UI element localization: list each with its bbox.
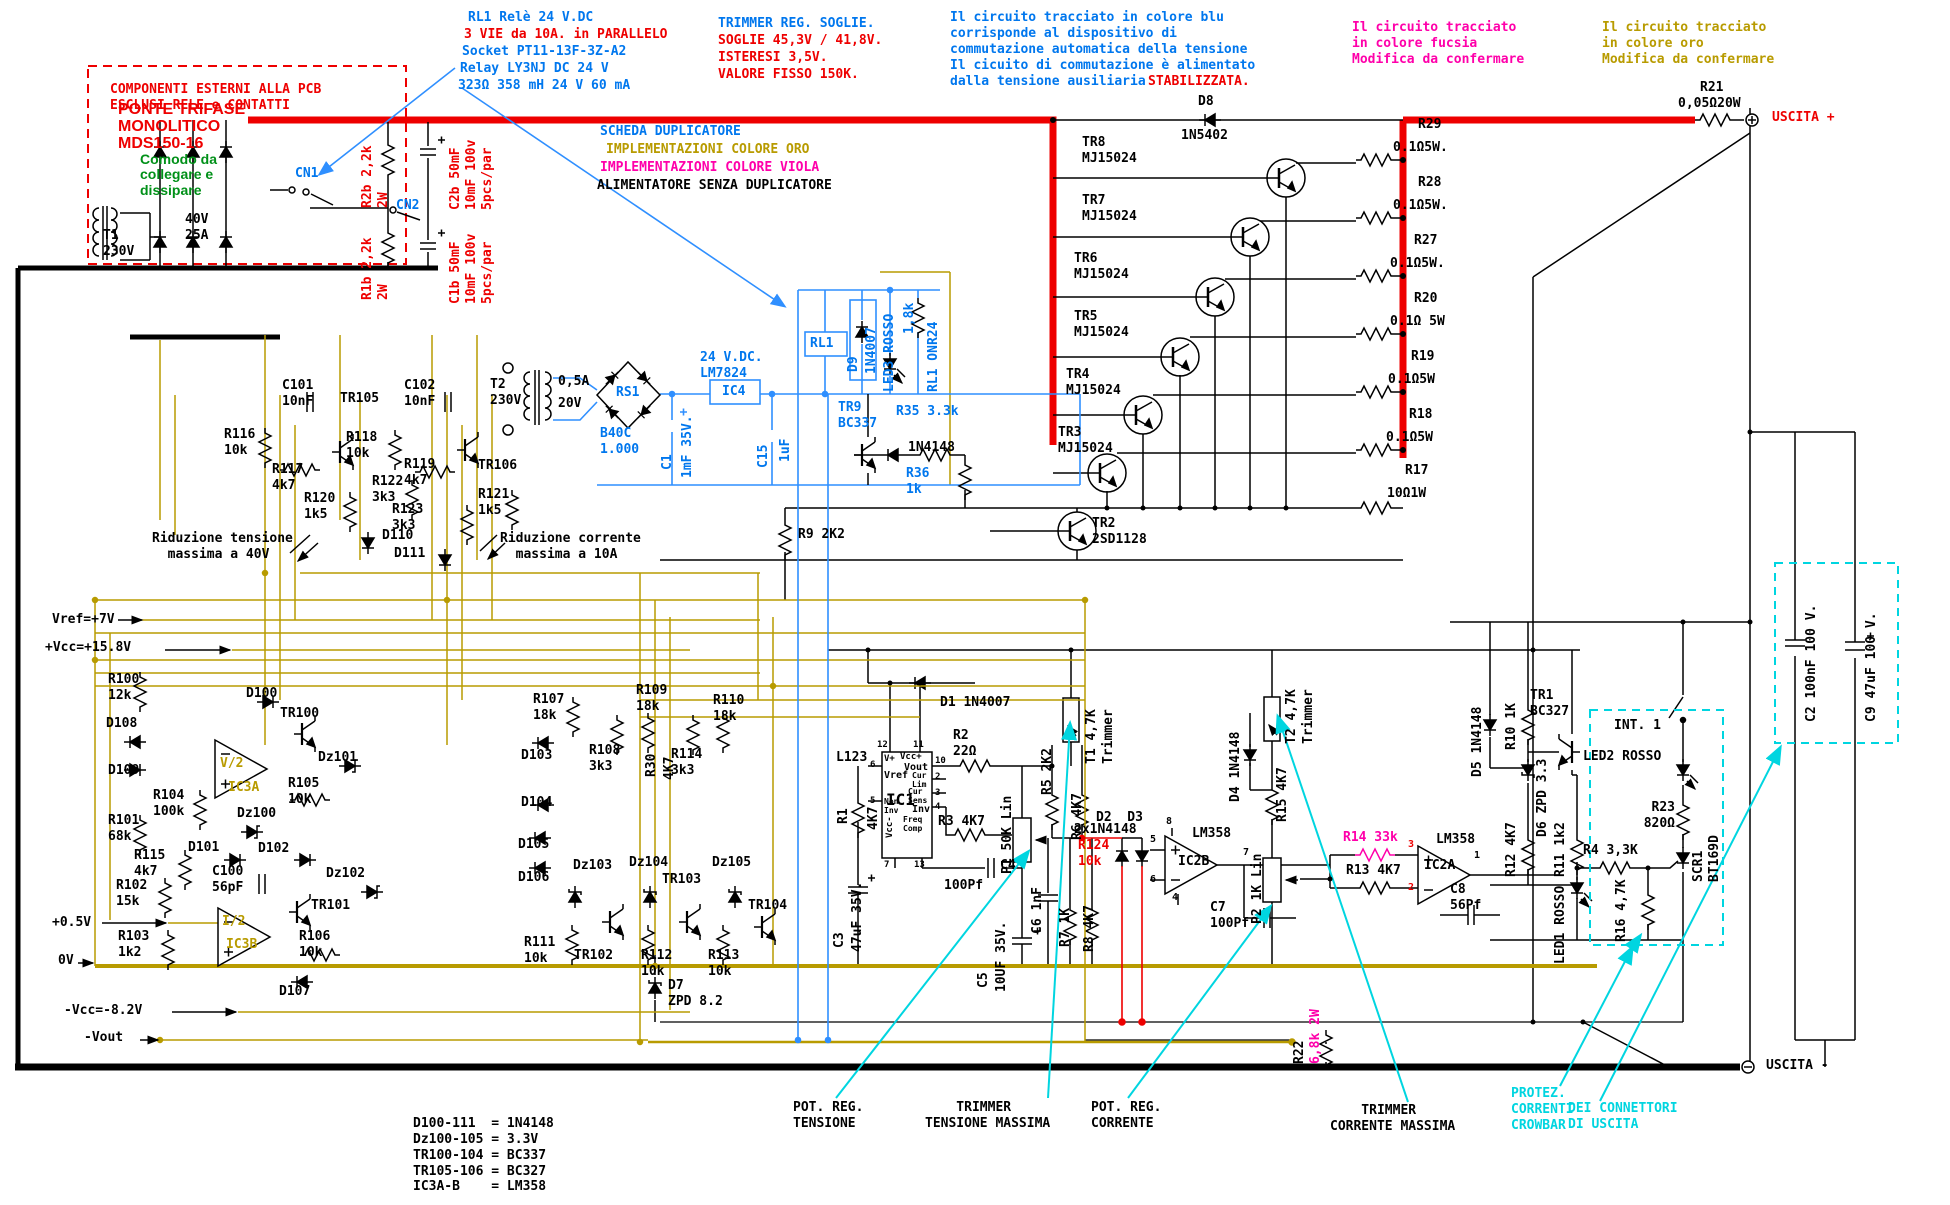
d4-label: D4 1N4148 (1228, 732, 1244, 802)
d9-value: 1N4007 (864, 327, 880, 374)
c7-label: C7 100Pf (1210, 900, 1249, 932)
vref-label: Vref=+7V (52, 612, 115, 628)
r16-label: R16 4,7K (1614, 879, 1630, 942)
d102-label: D102 (258, 841, 289, 857)
d110-label: D110 (382, 528, 413, 544)
note-blue-circuit: Il circuito tracciato in colore blu corr… (950, 10, 1255, 73)
p2-label: P2 1K Lin (1250, 854, 1266, 924)
aux-supply (320, 68, 1080, 1043)
note-scheda-2: IMPLEMENTAZIONI COLORE ORO (606, 142, 810, 158)
r20-label: R20 (1414, 291, 1437, 307)
c5-label: C5 (976, 972, 992, 988)
r22-value: 6,8k 2W (1308, 1009, 1324, 1064)
d105-label: D105 (518, 837, 549, 853)
r112-label: R112 10k (641, 948, 672, 980)
ic1-pin11: 11 (913, 740, 924, 751)
r103-label: R103 1k2 (118, 929, 149, 961)
ic2a-pin2: 2 (1408, 882, 1414, 894)
r120-label: R120 1k5 (304, 491, 335, 523)
ic1-pin4: 4 (935, 802, 940, 813)
tr3-label: TR3 MJ15024 (1058, 425, 1113, 457)
r1-value: 4K7 (866, 807, 882, 830)
tr103-label: TR103 (662, 872, 701, 888)
ic1-pin5: 5 (870, 796, 875, 807)
t2-trimmer-word: Trimmer (1301, 689, 1317, 744)
ic3a-label: IC3A (228, 780, 259, 796)
c3-value: 47uF 35V. (850, 882, 866, 952)
ic4-label: IC4 (722, 384, 745, 400)
tr8-label: TR8 MJ15024 (1082, 135, 1137, 167)
d8-value: 1N5402 (1181, 128, 1228, 144)
d-tr9-label: 1N4148 (908, 440, 955, 456)
callout-connettori: DEI CONNETTORI DI USCITA (1568, 1101, 1678, 1133)
r30-value: 4K7 (662, 757, 678, 780)
dz101-label: Dz101 (318, 750, 357, 766)
d2-d3-value: 2x1N4148 (1074, 822, 1137, 838)
callout-trimmer-corrente: TRIMMER CORRENTE MASSIMA (1330, 1103, 1455, 1135)
l123-label: L123 (836, 750, 867, 766)
r102-label: R102 15k (116, 878, 147, 910)
ic1-cursens: Cur Sens (908, 788, 927, 806)
r124-label: R124 10k (1078, 838, 1109, 870)
tr104-label: TR104 (748, 898, 787, 914)
d103-label: D103 (521, 748, 552, 764)
r2b-label: R2b 2,2k 2W (360, 145, 392, 208)
r27-value: 0.1Ω5W. (1390, 256, 1445, 272)
rl1-label: RL1 (810, 336, 833, 352)
r109-label: R109 18k (636, 683, 667, 715)
c1-label: C1 (660, 454, 676, 470)
tr6-label: TR6 MJ15024 (1074, 251, 1129, 283)
r5-label: R5 2K2 (1040, 748, 1056, 795)
r20-value: 0.1Ω 5W (1390, 314, 1445, 330)
ic1-noninv: Non Inv (884, 798, 898, 816)
tr9-label: TR9 BC337 (838, 400, 877, 432)
note-oro: Il circuito tracciato in colore oro Modi… (1602, 20, 1774, 68)
note-comodo: Comodo da collegare e dissipare (140, 152, 217, 198)
tr1-label: TR1 BC327 (1530, 688, 1569, 720)
dz105-label: Dz105 (712, 855, 751, 871)
c2b-label: C2b 50mF 10mF 100v 5pcs/par (448, 140, 496, 210)
r29-label: R29 (1418, 117, 1441, 133)
tr106-label: TR106 (478, 458, 517, 474)
c9-label: C9 47uF 100 V. (1864, 612, 1880, 722)
schematic-artwork (0, 0, 1950, 1205)
d8-label: D8 (1198, 94, 1214, 110)
ic3a-half-label: V/2 (220, 756, 243, 772)
t2-secondary: 20V (558, 396, 581, 412)
ic2a-label: IC2A (1424, 858, 1455, 874)
r108-label: R108 3k3 (589, 743, 620, 775)
c5-value: 10UF 35V. (994, 922, 1010, 992)
r1k8-label: 1,8k (902, 303, 918, 334)
r22-label: R22 (1292, 1041, 1308, 1064)
r14-label: R14 33k (1343, 830, 1398, 846)
ic4-rail-label: 24 V.DC. LM7824 (700, 350, 763, 382)
c15-label: C15 (756, 445, 772, 468)
c8-label: C8 56Pf (1450, 882, 1481, 914)
scr1-label: SCR1 BT169D (1691, 835, 1723, 882)
ic2b-label: IC2B (1178, 854, 1209, 870)
r13-label: R13 4K7 (1346, 863, 1401, 879)
tr100-label: TR100 (280, 706, 319, 722)
d9-label: D9 (846, 356, 862, 372)
cn1-label: CN1 (295, 166, 318, 182)
rl1-onr24-label: RL1 ONR24 (926, 322, 942, 392)
r19-value: 0.1Ω5W (1388, 372, 1435, 388)
note-blue-stabilizzata: STABILIZZATA. (1148, 74, 1250, 90)
d106-label: D106 (518, 870, 549, 886)
r18-value: 0.1Ω5W (1386, 430, 1433, 446)
r1-label: R1 (836, 808, 852, 824)
main-rails (15, 268, 1740, 1067)
r3-label: R3 4K7 (938, 814, 985, 830)
c15-value: 1uF (778, 439, 794, 462)
ic1-freqcomp: Freq Comp (903, 816, 922, 834)
tr2-label: TR2 2SD1128 (1092, 516, 1147, 548)
r8-label: R8 4K7 (1082, 905, 1098, 952)
r107-label: R107 18k (533, 692, 564, 724)
c3-label: C3 (832, 932, 848, 948)
ic2b-pin5: 5 (1150, 834, 1156, 846)
c101-label: C101 10nF (282, 378, 313, 410)
ic2b-pin7: 7 (1243, 847, 1249, 859)
tr4-label: TR4 MJ15024 (1066, 367, 1121, 399)
led1-label: LED1 ROSSO (1553, 886, 1569, 964)
r21-label: R21 (1700, 80, 1723, 96)
ic2b-pin8: 8 (1166, 816, 1172, 828)
vcc-label: +Vcc=+15.8V (45, 640, 131, 656)
note-blue-l5: dalla tensione ausiliaria (950, 74, 1146, 90)
callout-trimmer-tensione: TRIMMER TENSIONE MASSIMA (925, 1100, 1050, 1132)
r35-label: R35 3.3k (896, 404, 959, 420)
note-ponte-trifase: PONTE TRIFASE MONOLITICO MDS150-16 (118, 102, 245, 152)
r119-label: R119 4k7 (404, 457, 435, 489)
ic1-pin6: 6 (870, 760, 875, 771)
t2-label: T2 230V (490, 377, 521, 409)
r115-label: R115 4k7 (134, 848, 165, 880)
r21-value: 0,05Ω20W (1678, 96, 1741, 112)
r28-label: R28 (1418, 175, 1441, 191)
tr101-label: TR101 (311, 898, 350, 914)
r23-label: R23 820Ω (1620, 800, 1675, 832)
callout-protezione: PROTEZ. CORRENTI CROWBAR (1511, 1086, 1574, 1134)
r118-label: R118 10k (346, 430, 377, 462)
d104-label: D104 (521, 795, 552, 811)
c1b-label: C1b 50mF 10mF 100v 5pcs/par (448, 234, 496, 304)
r11-label: R11 1k2 (1553, 822, 1569, 877)
r18-label: R18 (1409, 407, 1432, 423)
r17-label: R17 (1405, 463, 1428, 479)
ic1-vref: Vref (884, 770, 908, 782)
c100-label: C100 56pF (212, 864, 243, 896)
t1-secondary: 40V 25A (185, 212, 208, 244)
r121-label: R121 1k5 (478, 487, 509, 519)
ic3b-label: IC3B (226, 937, 257, 953)
r27-label: R27 (1414, 233, 1437, 249)
tr105-label: TR105 (340, 391, 379, 407)
r101-label: R101 68k (108, 813, 139, 845)
d107-label: D107 (279, 984, 310, 1000)
r10-label: R10 1K (1504, 703, 1520, 750)
ic2b-pin6: 6 (1150, 874, 1156, 886)
t1-trimmer-word: Trimmer (1101, 709, 1117, 764)
r4-label: R4 3,3K (1583, 843, 1638, 859)
note-rl1-line3: Socket PT11-13F-3Z-A2 (462, 44, 626, 60)
tr7-label: TR7 MJ15024 (1082, 193, 1137, 225)
r28-value: 0.1Ω5W. (1393, 198, 1448, 214)
ic1-pin10: 10 (935, 756, 946, 767)
c2-label: C2 100nF 100 V. (1804, 605, 1820, 722)
t1-trimmer-label: T1 4,7K (1084, 709, 1100, 764)
r110-label: R110 18k (713, 693, 744, 725)
r9-label: R9 2K2 (798, 527, 845, 543)
v0-label: 0V (58, 953, 74, 969)
v05-label: +0.5V (52, 915, 91, 931)
note-trimmer-3: ISTERESI 3,5V. (718, 50, 828, 66)
uscita-minus-label: USCITA - (1766, 1058, 1829, 1074)
external-components-box (88, 66, 1695, 458)
t2-fuse: 0,5A (558, 374, 589, 390)
r122-label: R122 3k3 (372, 474, 403, 506)
dz104-label: Dz104 (629, 855, 668, 871)
d100-label: D100 (246, 686, 277, 702)
nvcc-label: -Vcc=-8.2V (64, 1003, 142, 1019)
callout-pot-corrente: POT. REG. CORRENTE (1091, 1100, 1161, 1132)
p1-label: P1 50K Lin (1000, 796, 1016, 874)
note-rl1-line4: Relay LY3NJ DC 24 V (460, 61, 609, 77)
r105-label: R105 10k (288, 776, 319, 808)
schematic-canvas: RL1 Relè 24 V.DC 3 VIE da 10A. in PARALL… (0, 0, 1950, 1205)
r104-label: R104 100k (153, 788, 184, 820)
note-riduzione-corrente: Riduzione corrente massima a 10A (500, 531, 641, 563)
callout-pot-tensione: POT. REG. TENSIONE (793, 1100, 863, 1132)
cn2-label: CN2 (396, 198, 419, 214)
dz102-label: Dz102 (326, 866, 365, 882)
dz103-label: Dz103 (573, 858, 612, 874)
tr5-label: TR5 MJ15024 (1074, 309, 1129, 341)
r111-label: R111 10k (524, 935, 555, 967)
d6-label: D6 ZPD 3.3 (1535, 759, 1551, 837)
r36-label: R36 1k (906, 466, 929, 498)
note-scheda-4: ALIMENTATORE SENZA DUPLICATORE (597, 178, 832, 194)
c6-label: C6 1nF (1030, 887, 1046, 934)
ic1-pin7: 7 (884, 860, 889, 871)
c102-label: C102 10nF (404, 378, 435, 410)
r1b-label: R1b 2,2k 2W (360, 237, 392, 300)
ic1-pin12: 12 (877, 740, 888, 751)
note-scheda-3: IMPLEMENTAZIONI COLORE VIOLA (600, 160, 819, 176)
lm358b-label: LM358 (1192, 826, 1231, 842)
ic1-vccminus: Vcc- (885, 816, 896, 838)
r7-label: R7 1K (1058, 908, 1074, 947)
t2-trimmer-label: T2 4,7K (1284, 689, 1300, 744)
r113-label: R113 10k (708, 948, 739, 980)
b40c-label: B40C 1.000 (600, 426, 639, 458)
r29-value: 0.1Ω5W. (1393, 140, 1448, 156)
note-fucsia: Il circuito tracciato in colore fucsia M… (1352, 20, 1524, 68)
note-scheda-1: SCHEDA DUPLICATORE (600, 124, 741, 140)
r12-label: R12 4K7 (1504, 822, 1520, 877)
t1-label: T1 230V (103, 228, 134, 260)
note-trimmer-2: SOGLIE 45,3V / 41,8V. (718, 33, 882, 49)
lm358a-label: LM358 (1436, 832, 1475, 848)
dz100-label: Dz100 (237, 806, 276, 822)
d109-label: D109 (108, 763, 139, 779)
led2-label: LED2 ROSSO (1583, 749, 1661, 765)
note-rl1-line2: 3 VIE da 10A. in PARALLELO (464, 27, 668, 43)
note-rl1-line5: 323Ω 358 mH 24 V 60 mA (458, 78, 630, 94)
r100-label: R100 12k (108, 672, 139, 704)
r19-label: R19 (1411, 349, 1434, 365)
r106-label: R106 10k (299, 929, 330, 961)
led3-label: LED3 ROSSO (882, 314, 898, 392)
r30-label: R30 (644, 754, 660, 777)
ic1-pin3: 3 (935, 788, 940, 799)
ic3b-half-label: I/2 (222, 914, 245, 930)
nvout-label: -Vout (84, 1030, 123, 1046)
r15-label: R15 4K7 (1275, 767, 1291, 822)
d7-label: D7 ZPD 8.2 (668, 978, 723, 1010)
note-rl1-line1: RL1 Relè 24 V.DC (468, 10, 593, 26)
ic2b-pin4: 4 (1172, 892, 1178, 904)
r2-label: R2 22Ω (953, 728, 976, 760)
tr102-label: TR102 (574, 948, 613, 964)
note-riduzione-tensione: Riduzione tensione massima a 40V (152, 531, 293, 563)
ic2a-pin1: 1 (1474, 850, 1480, 862)
d108-label: D108 (106, 716, 137, 732)
note-trimmer-1: TRIMMER REG. SOGLIE. (718, 16, 875, 32)
c1-value: 1mF 35V. (680, 415, 696, 478)
d1-label: D1 1N4007 (940, 695, 1010, 711)
ic1-pin13: 13 (914, 860, 925, 871)
ic1-pin2: 2 (935, 772, 940, 783)
d101-label: D101 (188, 840, 219, 856)
uscita-plus-label: USCITA + (1772, 110, 1835, 126)
note-trimmer-4: VALORE FISSO 150K. (718, 67, 859, 83)
ic1-vplus: V+ (884, 754, 895, 765)
d5-label: D5 1N4148 (1470, 707, 1486, 777)
c4-value: 100Pf (944, 878, 983, 894)
int1-label: INT. 1 (1614, 718, 1661, 734)
d111-label: D111 (394, 546, 425, 562)
r117-label: R117 4k7 (272, 462, 303, 494)
ic2a-pin3: 3 (1408, 839, 1414, 851)
r116-label: R116 10k (224, 427, 255, 459)
legend-table: D100-111 = 1N4148 Dz100-105 = 3.3V TR100… (413, 1116, 554, 1195)
r17-value: 10Ω1W (1387, 486, 1426, 502)
rs1-label: RS1 (616, 385, 639, 401)
